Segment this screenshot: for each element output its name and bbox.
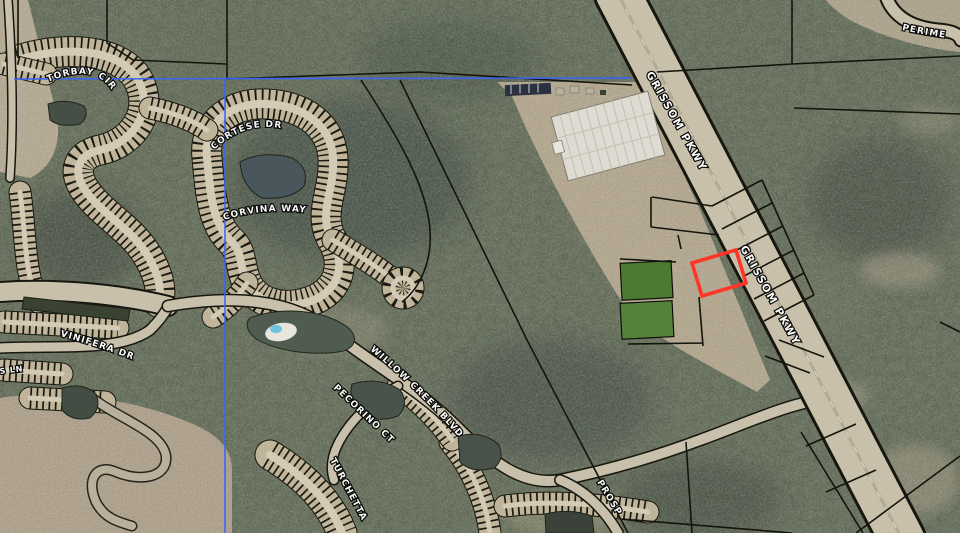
pond bbox=[62, 386, 98, 419]
pond bbox=[48, 101, 86, 125]
aerial-parcel-map[interactable]: GRISSOM PKWY GRISSOM PKWY PERIME TORBAY … bbox=[0, 0, 960, 533]
map-canvas: GRISSOM PKWY GRISSOM PKWY PERIME TORBAY … bbox=[0, 0, 960, 533]
pond bbox=[545, 511, 594, 533]
